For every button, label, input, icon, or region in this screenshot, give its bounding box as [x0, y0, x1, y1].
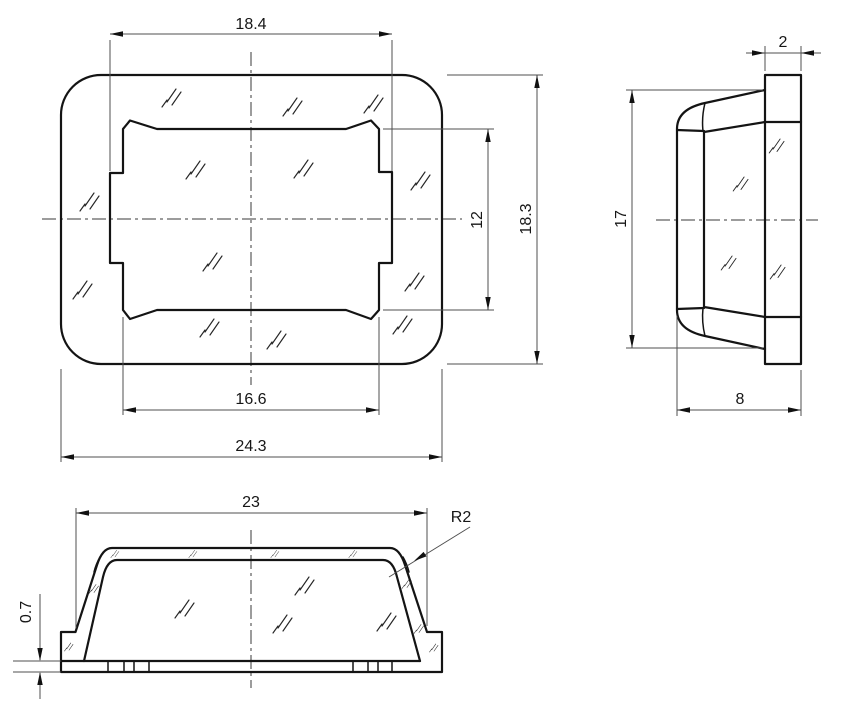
side-hatch-marks — [721, 139, 785, 279]
hatch-mark — [349, 550, 357, 558]
hatch-mark — [203, 253, 222, 271]
hatch-mark — [73, 281, 92, 299]
side-corner-line-top — [677, 130, 704, 131]
hatch-mark — [405, 273, 424, 291]
arrowhead — [629, 335, 634, 348]
hatch-mark — [295, 577, 314, 595]
hatch-mark — [721, 256, 736, 270]
hatch-mark — [186, 161, 205, 179]
dim-label-overall-width: 24.3 — [235, 438, 266, 455]
dim-label-flange-thickness: 2 — [779, 34, 788, 51]
hatch-mark — [162, 89, 181, 107]
hatch-mark — [733, 177, 748, 191]
technical-drawing: 18.4 16.6 24.3 18.3 — [0, 0, 854, 722]
hatch-mark — [770, 265, 785, 279]
bottom-view: 23 R2 0.7 — [13, 494, 471, 699]
dim-label-base-thickness: 0.7 — [18, 601, 35, 623]
dimension-r2: R2 — [389, 509, 471, 577]
side-corner-seam-top — [703, 103, 705, 131]
bottom-base-ticks — [108, 661, 392, 672]
arrowhead — [485, 297, 490, 310]
dimension-2: 2 — [746, 34, 821, 71]
hatch-mark — [65, 643, 74, 651]
arrowhead — [429, 454, 442, 459]
arrowhead — [801, 50, 814, 55]
arrowhead — [534, 75, 539, 88]
arrowhead — [485, 129, 490, 142]
hatch-mark — [294, 160, 313, 178]
hatch-mark — [80, 193, 99, 211]
dimension-0-7: 0.7 — [13, 594, 61, 699]
dimension-8: 8 — [677, 316, 801, 416]
hatch-mark — [267, 331, 286, 349]
arrowhead — [123, 407, 136, 412]
hatch-mark — [175, 600, 194, 618]
dim-label-tab-width: 18.4 — [235, 16, 266, 33]
arrowhead — [752, 50, 765, 55]
dim-label-overall-height: 18.3 — [518, 203, 535, 234]
arrowhead — [677, 407, 690, 412]
hatch-mark — [200, 319, 219, 337]
bottom-inner-profile — [84, 560, 420, 661]
arrowhead — [534, 351, 539, 364]
arrowhead — [629, 90, 634, 103]
dim-label-corner-radius: R2 — [451, 509, 472, 526]
dim-label-opening-width: 16.6 — [235, 391, 266, 408]
hatch-mark — [283, 98, 302, 116]
arrowhead — [37, 648, 42, 661]
hatch-mark — [430, 644, 439, 652]
dim-label-depth: 8 — [736, 391, 745, 408]
side-corner-line-bottom — [677, 308, 704, 309]
hatch-mark — [377, 613, 396, 631]
arrowhead — [414, 510, 427, 515]
arrowhead — [37, 672, 42, 685]
hatch-mark — [414, 625, 424, 634]
side-view: 2 17 8 — [613, 34, 821, 416]
arrowhead — [366, 407, 379, 412]
dim-label-opening-height: 12 — [469, 211, 486, 229]
hatch-mark — [769, 139, 784, 153]
hatch-mark — [273, 615, 292, 633]
dim-label-body-height: 17 — [613, 210, 630, 228]
bottom-corner-seam-left — [94, 557, 100, 572]
arrowhead — [110, 31, 123, 36]
hatch-mark — [393, 316, 412, 334]
front-view: 18.4 16.6 24.3 18.3 — [42, 16, 543, 462]
side-corner-seam-bottom — [703, 308, 705, 336]
hatch-mark — [271, 550, 279, 558]
hatch-mark — [111, 550, 119, 558]
dim-label-top-width: 23 — [242, 494, 260, 511]
drawing-canvas: 18.4 16.6 24.3 18.3 — [0, 0, 854, 722]
arrowhead — [76, 510, 89, 515]
arrowhead — [788, 407, 801, 412]
hatch-mark — [189, 550, 197, 558]
hatch-mark — [411, 172, 430, 190]
arrowhead — [379, 31, 392, 36]
arrowhead — [61, 454, 74, 459]
hatch-mark — [364, 95, 383, 113]
